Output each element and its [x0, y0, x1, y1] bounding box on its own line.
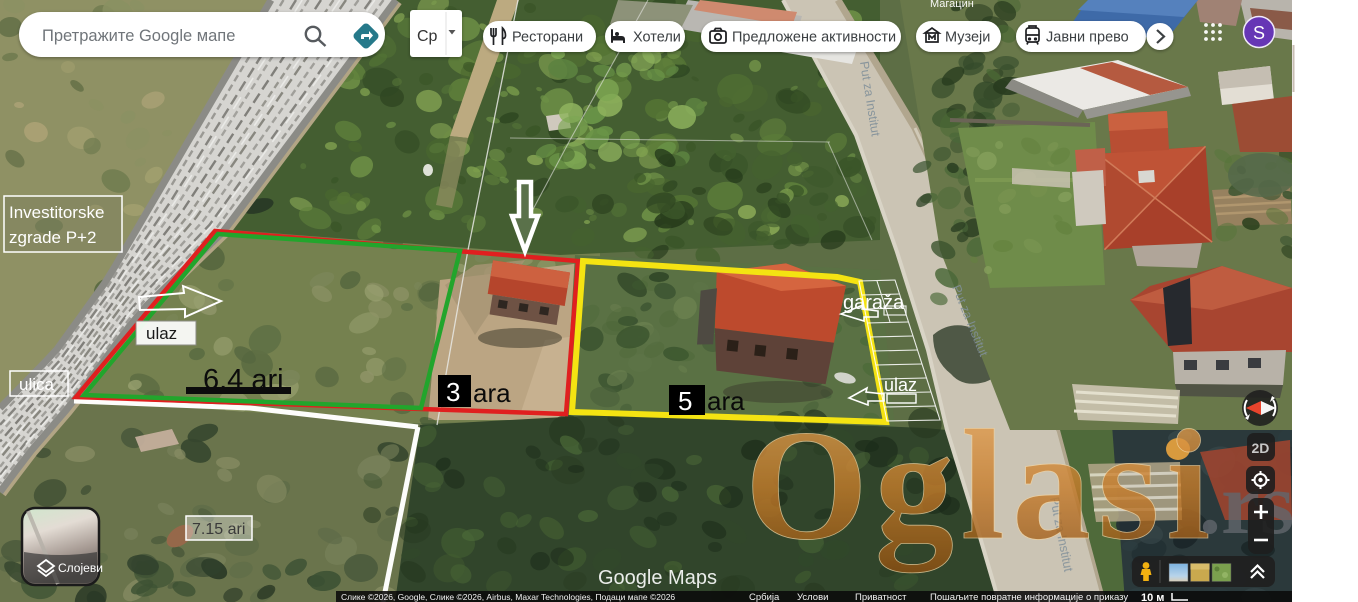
svg-text:ulaz: ulaz [884, 375, 917, 395]
svg-text:Ср: Ср [417, 28, 438, 45]
svg-text:7.15 ari: 7.15 ari [192, 521, 245, 538]
svg-text:Ресторани: Ресторани [512, 30, 583, 46]
svg-text:Претражите Google мапе: Претражите Google мапе [42, 27, 235, 45]
svg-text:ara: ara [707, 386, 745, 416]
svg-text:Приватност: Приватност [855, 592, 907, 602]
svg-text:ulica: ulica [19, 375, 55, 394]
svg-text:Јавни прево: Јавни прево [1046, 30, 1129, 46]
svg-text:S: S [1253, 23, 1265, 43]
svg-text:2D: 2D [1252, 440, 1270, 456]
svg-text:Србија: Србија [749, 592, 780, 602]
svg-text:Investitorske: Investitorske [9, 203, 104, 222]
svg-text:5: 5 [678, 386, 692, 416]
svg-text:Предложене активности: Предложене активности [732, 30, 896, 46]
svg-text:ara: ara [473, 378, 511, 408]
svg-text:Хотели: Хотели [633, 30, 681, 46]
svg-text:10 м: 10 м [1141, 592, 1164, 602]
svg-text:zgrade P+2: zgrade P+2 [9, 228, 96, 247]
svg-text:Слојеви: Слојеви [58, 561, 103, 575]
svg-text:Пошаљите повратне информације: Пошаљите повратне информације о приказу [930, 592, 1128, 602]
svg-text:Услови: Услови [797, 592, 828, 602]
svg-text:Google Maps: Google Maps [598, 567, 717, 589]
svg-text:ulaz: ulaz [146, 324, 177, 343]
svg-text:Магацин: Магацин [930, 0, 974, 10]
svg-text:Слике ©2026, Google, Слике ©20: Слике ©2026, Google, Слике ©2026, Airbus… [341, 592, 675, 602]
svg-text:Oglasi: Oglasi [745, 398, 1217, 573]
svg-text:Музеји: Музеји [945, 30, 990, 46]
svg-text:3: 3 [446, 377, 460, 407]
